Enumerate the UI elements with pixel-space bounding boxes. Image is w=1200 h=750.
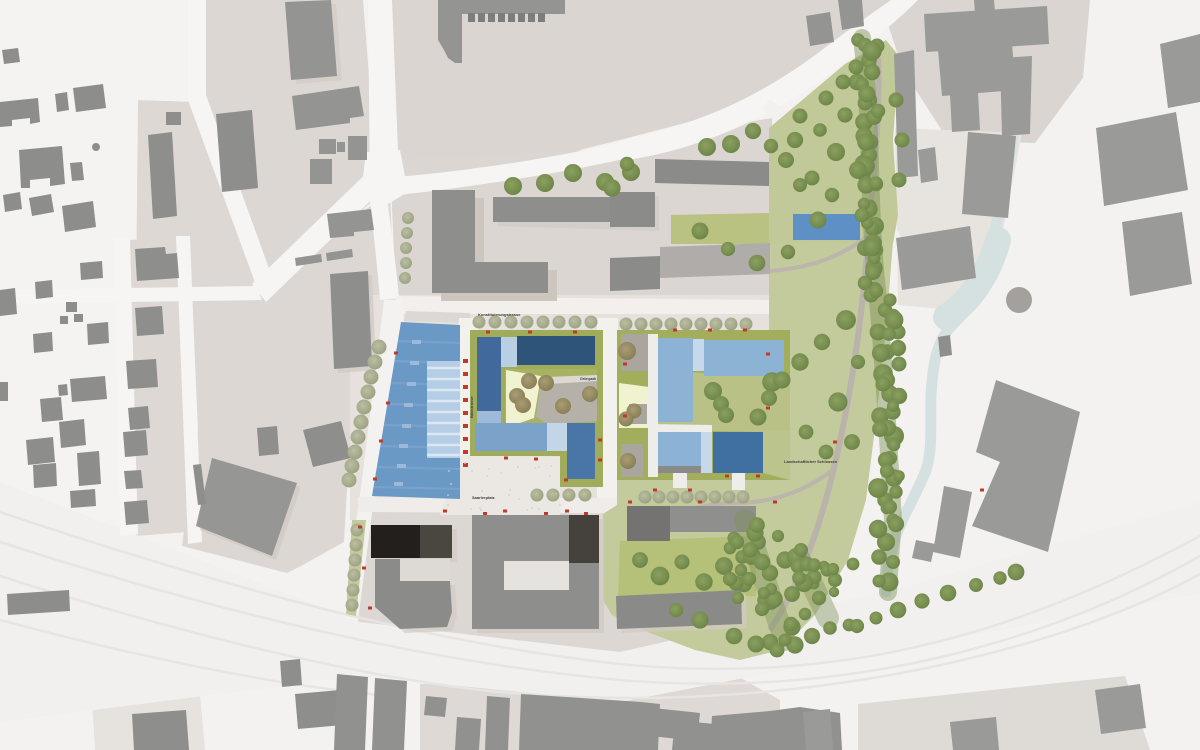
svg-text:Bildstrasse: Bildstrasse <box>469 396 474 418</box>
svg-text:Landschaftlicher Schlossen: Landschaftlicher Schlossen <box>784 459 838 464</box>
svg-text:Grünpark: Grünpark <box>580 377 596 381</box>
svg-text:Saarlerplatz: Saarlerplatz <box>472 495 495 500</box>
svg-text:Konstituierungstrasse: Konstituierungstrasse <box>478 312 521 317</box>
